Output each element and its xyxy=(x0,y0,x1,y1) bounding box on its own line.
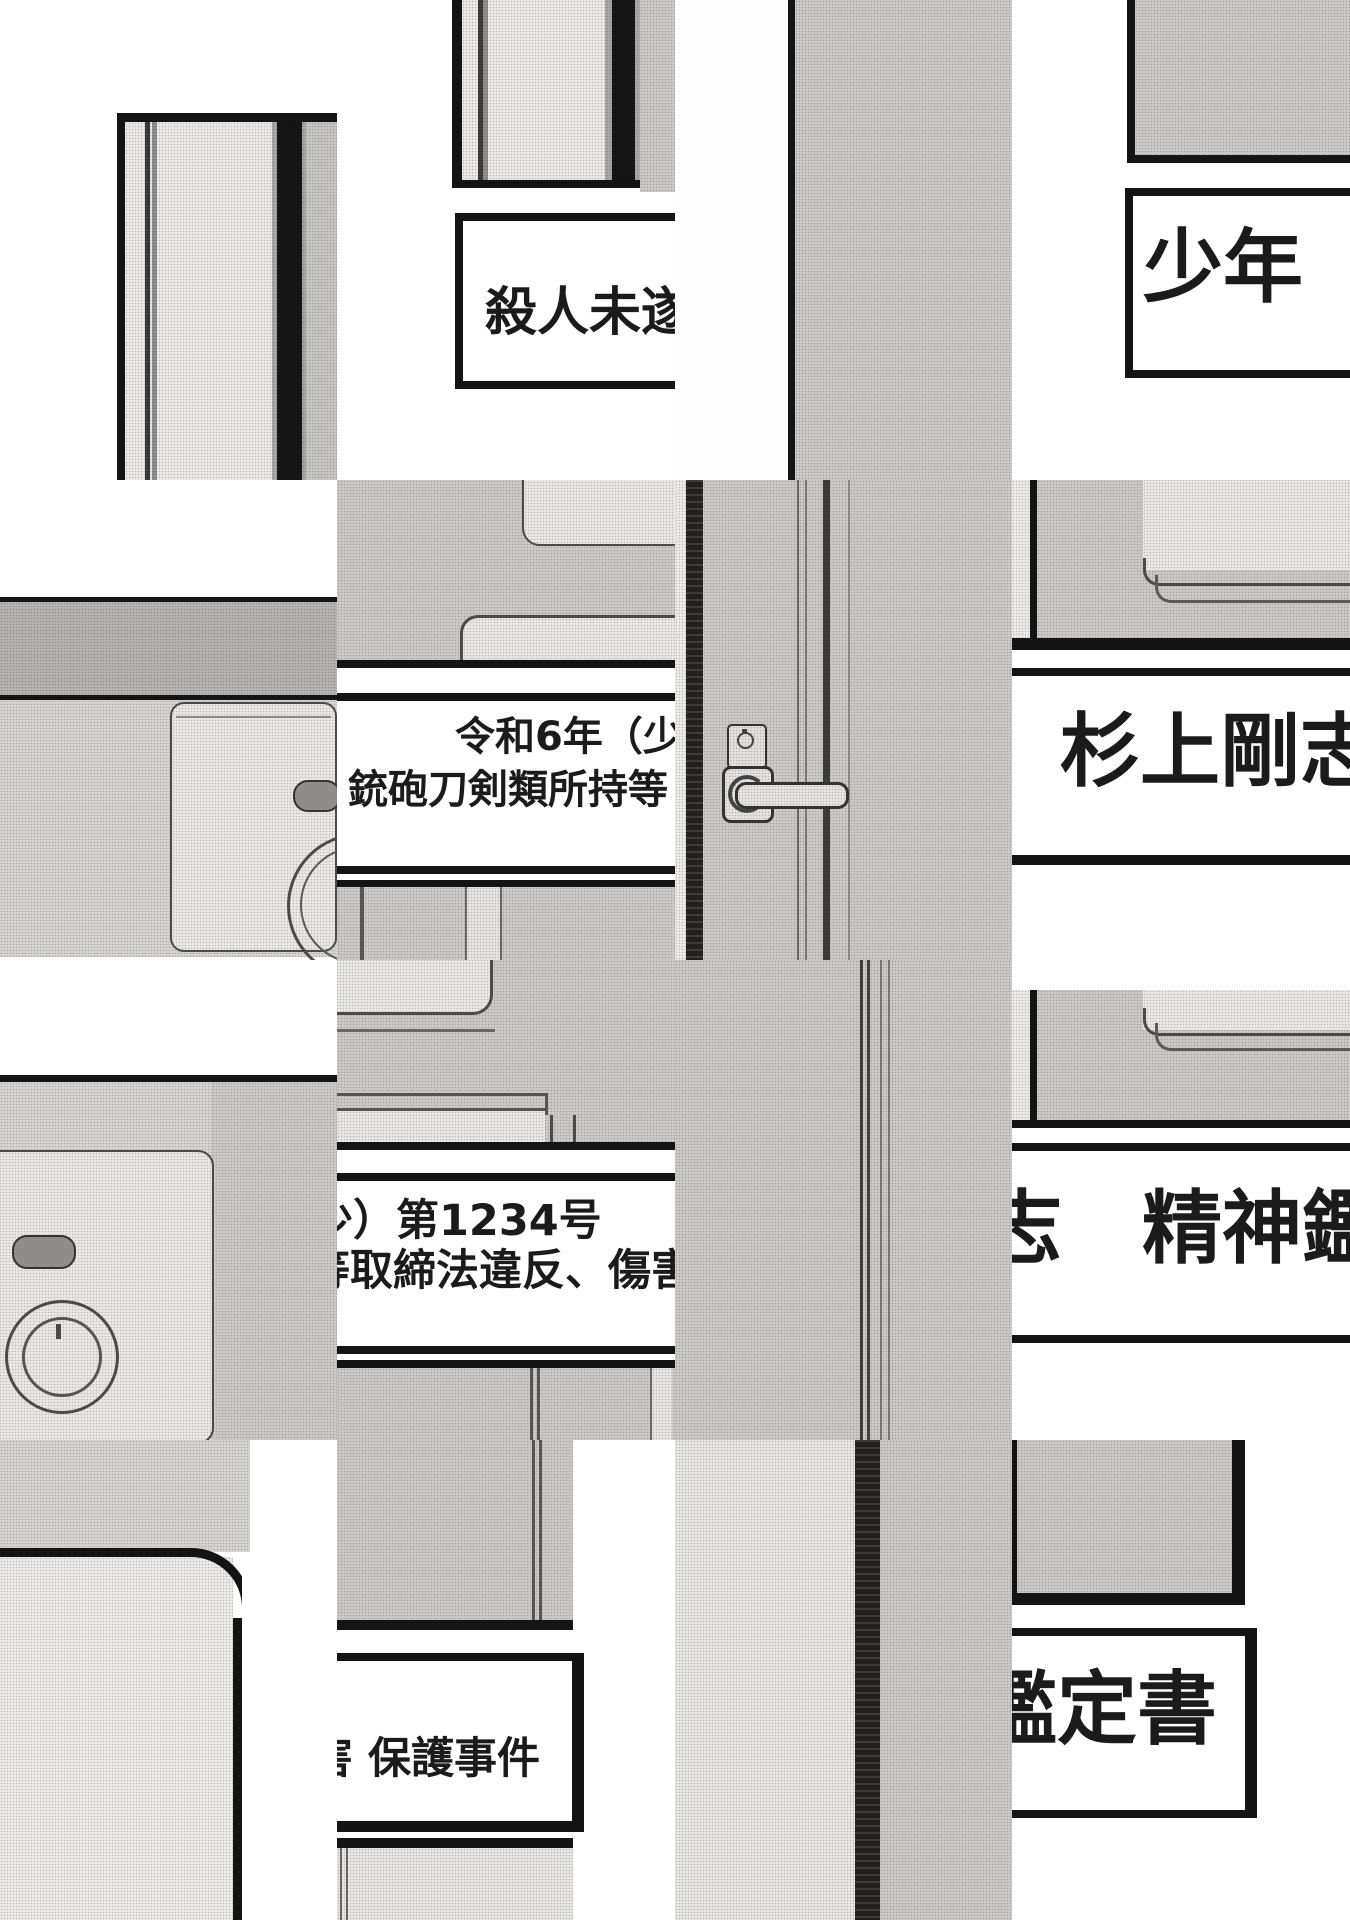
inset-panel-lower xyxy=(460,615,675,663)
inset-corner xyxy=(545,1093,548,1115)
caption-box-attempted-murder: 殺人未遂、 xyxy=(455,213,675,389)
rail-band xyxy=(0,602,337,695)
panel-fill xyxy=(1017,1440,1232,1593)
caption-box-protection-case: 害 保護事件 xyxy=(337,1653,584,1832)
frame-light-strip xyxy=(1012,480,1030,638)
tile-r1c2: 殺人未遂、 xyxy=(337,0,675,480)
door-groove-heavy xyxy=(823,480,830,960)
wall-tone xyxy=(0,1440,250,1552)
caption-box-report-title: 鑑定書 xyxy=(1012,1628,1257,1818)
panel-border-right xyxy=(1232,1440,1245,1605)
tile-r1c4: 少年 xyxy=(1012,0,1350,480)
caption-text: 杉上剛志 xyxy=(1060,712,1350,792)
frame-edge-line xyxy=(1030,480,1037,638)
door-groove-heavy xyxy=(860,960,863,1440)
tile-r4c2: 害 保護事件 xyxy=(337,1440,675,1920)
lower-door-face xyxy=(337,1368,675,1440)
door-groove xyxy=(539,1440,542,1620)
tile-r2c4: 杉上剛志 xyxy=(1012,480,1350,960)
inset-panel-upper xyxy=(337,960,493,1015)
door-groove xyxy=(848,480,850,960)
door-groove xyxy=(346,1848,348,1920)
tile-r3c1 xyxy=(0,960,337,1440)
door-gap-shadow xyxy=(686,480,703,960)
frame-light-strip xyxy=(1012,990,1030,1120)
lower-panel-border-top xyxy=(337,1838,573,1848)
door-groove xyxy=(573,1115,576,1142)
panel-border-top xyxy=(0,1548,170,1557)
panel-border-left xyxy=(1012,1440,1017,1593)
lock-indicator-mark xyxy=(742,729,747,733)
door-trim-strip xyxy=(465,887,502,960)
panel-border-bottom xyxy=(1012,1120,1350,1128)
door-face xyxy=(703,480,1012,960)
lower-panel-face xyxy=(337,1848,573,1920)
caption-text: 鑑定書 xyxy=(1012,1670,1217,1750)
caption-text: 害 保護事件 xyxy=(337,1738,540,1781)
panel-border-bottom xyxy=(337,1620,573,1630)
door-groove xyxy=(797,480,799,960)
manga-collage-page: 殺人未遂、 少年 令和6年（少 銃砲刀剣類所持等 xyxy=(0,0,1350,1920)
inset-panel-upper xyxy=(522,480,675,546)
door-groove xyxy=(550,1115,553,1142)
inset-outline-echo xyxy=(337,1029,495,1032)
panel-border-top xyxy=(117,113,337,122)
door-face xyxy=(675,960,1012,1440)
caption-text: 等取締法違反、傷害 xyxy=(337,1250,675,1293)
panel-border-bottom xyxy=(1012,1593,1245,1605)
door-frame-bands xyxy=(462,0,640,180)
panel-border-left xyxy=(117,113,125,480)
door-frame-bands xyxy=(125,122,337,480)
door-handle-lever[interactable] xyxy=(735,782,849,809)
door-groove xyxy=(532,1440,535,1620)
panel-border-bottom xyxy=(1127,155,1350,163)
inset-outline-2 xyxy=(1155,575,1350,603)
door-face-white xyxy=(675,0,788,480)
button-ring-inner[interactable] xyxy=(22,1317,102,1397)
wall-tone-right xyxy=(212,1082,337,1440)
wall-tone xyxy=(880,1440,1012,1920)
caption-text: 殺人未遂、 xyxy=(485,287,675,339)
caption-box-case-number: 少）第1234号 等取締法違反、傷害 xyxy=(337,1173,675,1354)
lower-door-face xyxy=(337,887,675,960)
door-trim-strip xyxy=(650,1368,672,1440)
lower-panel-border-top xyxy=(337,1360,675,1368)
lower-panel-border-top xyxy=(337,880,675,887)
door-face-light xyxy=(675,1440,855,1920)
caption-text: 少年 xyxy=(1143,228,1303,308)
power-tick xyxy=(56,1324,61,1339)
lock-indicator-dial xyxy=(737,732,754,749)
inset-panel-lower xyxy=(337,1111,545,1142)
caption-box-juvenile: 少年 xyxy=(1125,188,1350,378)
panel-border-bottom xyxy=(337,1142,675,1150)
door-groove xyxy=(880,960,882,1440)
tile-r2c1 xyxy=(0,480,337,960)
door-gap-shadow xyxy=(855,1440,880,1920)
tile-r3c4: 志 精神鑑 xyxy=(1012,960,1350,1440)
tile-r1c3 xyxy=(675,0,1012,480)
panel-border-left xyxy=(452,0,462,188)
card-slot xyxy=(12,1235,76,1269)
door-groove xyxy=(360,887,364,960)
door-edge-line xyxy=(788,0,795,480)
tile-r4c1 xyxy=(0,1440,337,1920)
tile-r2c3 xyxy=(675,480,1012,960)
tile-r4c3 xyxy=(675,1440,1012,1920)
door-face xyxy=(337,1440,573,1620)
device-plate-line xyxy=(176,716,331,718)
caption-box-subject-name: 杉上剛志 xyxy=(1012,668,1350,865)
panel-fill xyxy=(1135,0,1350,155)
panel-border-bottom xyxy=(337,660,675,668)
door-groove xyxy=(888,960,890,1440)
inset-panel-fill xyxy=(1143,480,1350,570)
panel-border-bottom xyxy=(1012,638,1350,650)
white-gap xyxy=(242,1557,337,1920)
rail-line xyxy=(0,1075,337,1082)
caption-text: 少）第1234号 xyxy=(337,1200,602,1243)
wall-strip xyxy=(640,0,675,192)
panel-border-left xyxy=(1127,0,1135,163)
panel-border-corner xyxy=(163,1548,251,1629)
caption-text: 令和6年（少 xyxy=(455,717,675,757)
tile-r1c1 xyxy=(0,0,337,480)
tile-r3c3 xyxy=(675,960,1012,1440)
frame-edge-line xyxy=(1030,990,1037,1120)
tile-r2c2: 令和6年（少 銃砲刀剣類所持等 xyxy=(337,480,675,960)
panel-border-bottom xyxy=(452,180,640,188)
inset-line-1 xyxy=(337,1093,548,1096)
door-groove xyxy=(537,1368,540,1440)
tile-r4c4: 鑑定書 xyxy=(1012,1440,1350,1920)
door-groove-heavy xyxy=(867,960,870,1440)
caption-box-psych: 志 精神鑑 xyxy=(1012,1143,1350,1343)
frame-light-strip xyxy=(675,480,686,960)
caption-text: 志 精神鑑 xyxy=(1012,1189,1350,1269)
door-groove xyxy=(530,1368,533,1440)
door-groove xyxy=(805,480,807,960)
caption-box-case-year: 令和6年（少 銃砲刀剣類所持等 xyxy=(337,693,675,874)
door-groove xyxy=(340,1848,342,1920)
caption-text: 銃砲刀剣類所持等 xyxy=(348,770,668,810)
wall-tone xyxy=(795,0,1012,480)
tile-r3c2: 少）第1234号 等取締法違反、傷害 xyxy=(337,960,675,1440)
panel-border-right xyxy=(233,1618,242,1920)
card-slot xyxy=(293,780,337,812)
inset-outline-2 xyxy=(1155,1023,1350,1051)
